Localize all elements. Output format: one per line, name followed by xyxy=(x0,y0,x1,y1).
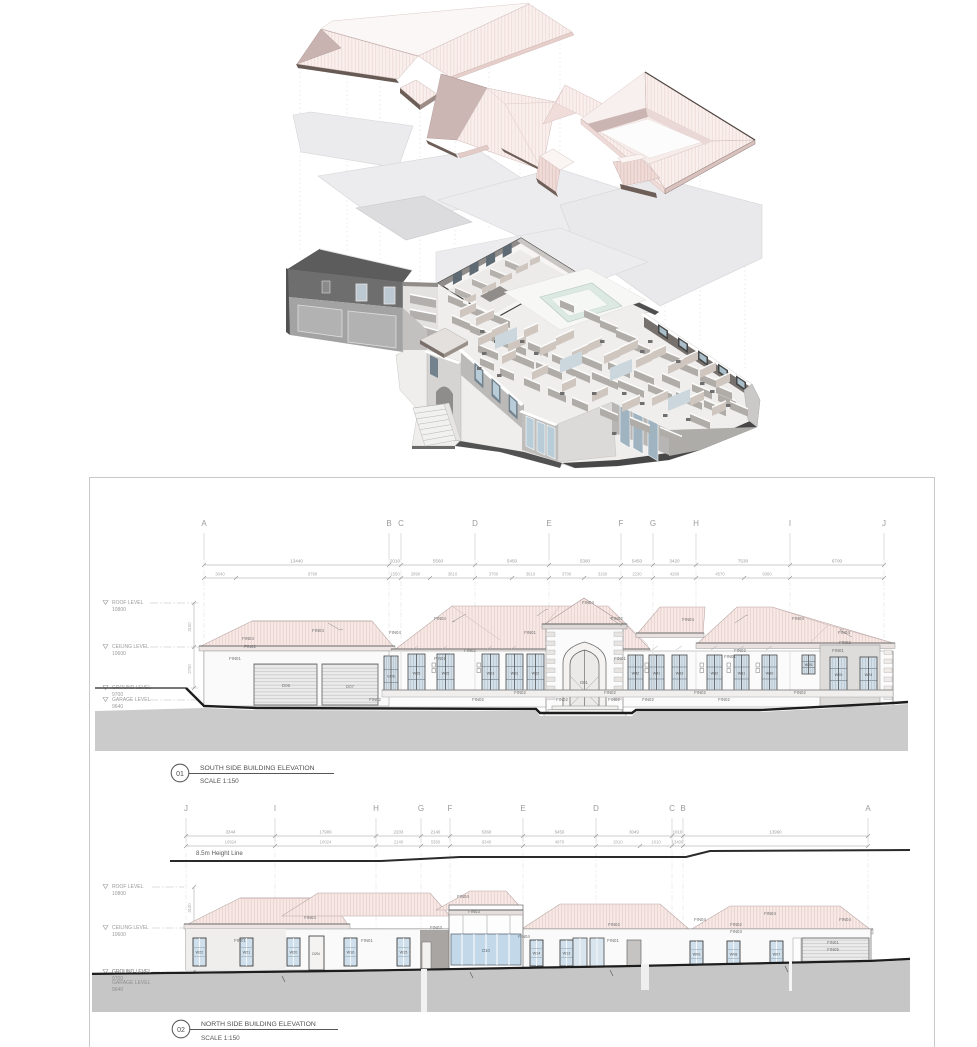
svg-text:5360: 5360 xyxy=(482,830,492,835)
svg-text:W07: W07 xyxy=(773,953,781,957)
svg-text:5450: 5450 xyxy=(632,559,643,564)
svg-text:H: H xyxy=(693,519,699,528)
svg-text:10800: 10800 xyxy=(112,607,126,613)
svg-text:FIN04: FIN04 xyxy=(389,630,401,635)
svg-text:1550: 1550 xyxy=(390,572,400,577)
svg-text:A: A xyxy=(201,519,207,528)
svg-text:I: I xyxy=(789,519,791,528)
svg-text:3049: 3049 xyxy=(629,830,639,835)
svg-text:13440: 13440 xyxy=(290,559,303,564)
svg-text:FIN02: FIN02 xyxy=(244,644,256,649)
svg-text:FIN02: FIN02 xyxy=(472,697,484,702)
svg-text:FIN01: FIN01 xyxy=(827,940,839,945)
svg-text:FIN02: FIN02 xyxy=(464,648,476,653)
svg-text:5560: 5560 xyxy=(433,559,444,564)
svg-text:FIN02: FIN02 xyxy=(694,690,706,695)
svg-text:9640: 9640 xyxy=(112,704,123,710)
svg-text:W05: W05 xyxy=(442,672,450,676)
svg-text:F: F xyxy=(619,519,624,528)
svg-text:W08: W08 xyxy=(730,953,738,957)
svg-text:10024: 10024 xyxy=(320,840,332,845)
svg-text:3344: 3344 xyxy=(226,830,236,835)
svg-text:ROOF LEVEL: ROOF LEVEL xyxy=(112,884,144,890)
svg-text:FIN01: FIN01 xyxy=(724,654,736,659)
svg-text:GARAGE LEVEL: GARAGE LEVEL xyxy=(112,697,151,703)
svg-text:FIN04: FIN04 xyxy=(838,630,850,635)
svg-text:F: F xyxy=(448,804,453,813)
svg-text:2010: 2010 xyxy=(613,840,623,845)
svg-text:FIN04: FIN04 xyxy=(304,915,316,920)
svg-text:FIN04: FIN04 xyxy=(518,934,530,939)
svg-text:NORTH SIDE BUILDING ELEVATION: NORTH SIDE BUILDING ELEVATION xyxy=(201,1021,316,1028)
svg-text:FIN01: FIN01 xyxy=(607,938,619,943)
svg-text:FIN03: FIN03 xyxy=(468,909,480,914)
svg-text:FIN02: FIN02 xyxy=(611,616,623,621)
svg-text:5450: 5450 xyxy=(507,559,518,564)
svg-text:W42: W42 xyxy=(632,672,640,676)
svg-text:FIN02: FIN02 xyxy=(608,922,620,927)
svg-text:FIN04: FIN04 xyxy=(694,917,706,922)
svg-text:B: B xyxy=(680,804,685,813)
svg-text:FIN01: FIN01 xyxy=(234,938,246,943)
svg-text:W05: W05 xyxy=(413,672,421,676)
svg-text:G: G xyxy=(418,804,424,813)
svg-text:FIN03: FIN03 xyxy=(430,925,442,930)
svg-text:9340: 9340 xyxy=(482,840,492,845)
svg-text:FIN02: FIN02 xyxy=(730,922,742,927)
svg-text:CEILING LEVEL: CEILING LEVEL xyxy=(112,925,149,931)
svg-text:B: B xyxy=(386,519,391,528)
svg-text:5380: 5380 xyxy=(580,559,591,564)
svg-text:9790: 9790 xyxy=(308,572,318,577)
svg-text:02: 02 xyxy=(177,1027,185,1034)
svg-text:6700: 6700 xyxy=(832,559,843,564)
svg-text:D: D xyxy=(593,804,599,813)
svg-text:3420: 3420 xyxy=(669,559,680,564)
svg-text:2140: 2140 xyxy=(431,830,441,835)
svg-text:FIN04: FIN04 xyxy=(457,894,469,899)
svg-text:FIN04: FIN04 xyxy=(682,617,694,622)
svg-text:10924: 10924 xyxy=(225,840,237,845)
svg-text:W30: W30 xyxy=(766,672,774,676)
svg-text:FIN04: FIN04 xyxy=(839,917,851,922)
svg-text:FIN02: FIN02 xyxy=(718,697,730,702)
svg-text:W02: W02 xyxy=(532,672,540,676)
svg-text:8.5m Height Line: 8.5m Height Line xyxy=(196,850,243,857)
svg-text:2230: 2230 xyxy=(632,572,642,577)
svg-text:01: 01 xyxy=(176,771,184,778)
svg-text:3100: 3100 xyxy=(187,903,192,913)
svg-text:10600: 10600 xyxy=(112,932,126,938)
svg-text:G: G xyxy=(650,519,656,528)
svg-text:FIN02: FIN02 xyxy=(734,648,746,653)
svg-text:SCALE 1:150: SCALE 1:150 xyxy=(200,778,239,785)
svg-text:J: J xyxy=(882,519,886,528)
svg-text:W26: W26 xyxy=(805,663,813,667)
svg-text:CEILING LEVEL: CEILING LEVEL xyxy=(112,644,149,650)
svg-text:FIN02: FIN02 xyxy=(608,697,620,702)
svg-text:D06: D06 xyxy=(282,683,291,688)
svg-text:FIN03: FIN03 xyxy=(730,929,742,934)
svg-text:2140: 2140 xyxy=(394,840,404,845)
svg-text:3610: 3610 xyxy=(526,572,536,577)
svg-text:ROOF LEVEL: ROOF LEVEL xyxy=(112,600,144,606)
svg-text:W33: W33 xyxy=(676,672,684,676)
svg-text:9360: 9360 xyxy=(762,572,772,577)
svg-text:FIN02: FIN02 xyxy=(369,697,381,702)
svg-text:FIN02: FIN02 xyxy=(514,690,526,695)
svg-text:W03: W03 xyxy=(487,672,495,676)
svg-text:2010: 2010 xyxy=(390,559,401,564)
svg-text:3610: 3610 xyxy=(448,572,458,577)
svg-text:H: H xyxy=(373,804,379,813)
svg-text:SOUTH SIDE BUILDING ELEVATION: SOUTH SIDE BUILDING ELEVATION xyxy=(200,765,315,772)
svg-text:FIN04: FIN04 xyxy=(242,636,254,641)
svg-text:C: C xyxy=(669,804,675,813)
svg-text:FIN02: FIN02 xyxy=(839,640,851,645)
svg-text:13960: 13960 xyxy=(769,830,782,835)
svg-text:FIN01: FIN01 xyxy=(434,656,446,661)
svg-text:I: I xyxy=(274,804,276,813)
svg-text:3100: 3100 xyxy=(187,622,192,632)
svg-text:FIN02: FIN02 xyxy=(642,697,654,702)
svg-text:FIN02: FIN02 xyxy=(556,697,568,702)
svg-text:FIN05: FIN05 xyxy=(827,947,839,952)
svg-text:3040: 3040 xyxy=(215,572,225,577)
svg-text:17909: 17909 xyxy=(319,830,332,835)
svg-text:5360: 5360 xyxy=(431,840,441,845)
svg-text:4570: 4570 xyxy=(715,572,725,577)
svg-text:SCALE 1:150: SCALE 1:150 xyxy=(201,1035,240,1042)
svg-text:4970: 4970 xyxy=(555,840,565,845)
svg-text:D: D xyxy=(472,519,478,528)
svg-text:3160: 3160 xyxy=(598,572,608,577)
svg-text:2890: 2890 xyxy=(411,572,421,577)
svg-text:2203: 2203 xyxy=(394,830,404,835)
svg-text:FIN04: FIN04 xyxy=(582,600,594,605)
svg-text:D10: D10 xyxy=(482,948,490,953)
svg-text:C: C xyxy=(398,519,404,528)
svg-text:FIN01: FIN01 xyxy=(524,630,536,635)
svg-text:FIN01: FIN01 xyxy=(832,648,844,653)
svg-text:W16: W16 xyxy=(347,951,355,955)
svg-text:FIN04: FIN04 xyxy=(764,911,776,916)
svg-text:D2N: D2N xyxy=(312,952,320,956)
svg-text:5450: 5450 xyxy=(555,830,565,835)
svg-text:FIN02: FIN02 xyxy=(794,690,806,695)
svg-text:3700: 3700 xyxy=(489,572,499,577)
svg-text:FIN04: FIN04 xyxy=(312,628,324,633)
svg-text:2750: 2750 xyxy=(187,664,192,674)
svg-text:E: E xyxy=(520,804,525,813)
svg-text:1010: 1010 xyxy=(651,840,661,845)
svg-text:FIN01: FIN01 xyxy=(361,938,373,943)
svg-text:W21: W21 xyxy=(243,951,251,955)
svg-text:FIN01: FIN01 xyxy=(614,656,626,661)
svg-text:W32: W32 xyxy=(711,672,719,676)
svg-text:D07: D07 xyxy=(346,684,355,689)
svg-text:W25: W25 xyxy=(835,673,843,677)
svg-text:GROUND LEVEL: GROUND LEVEL xyxy=(112,969,151,975)
svg-text:10600: 10600 xyxy=(112,651,126,657)
svg-text:10800: 10800 xyxy=(112,891,126,897)
svg-text:D01: D01 xyxy=(580,680,588,685)
svg-text:9640: 9640 xyxy=(112,987,123,993)
svg-text:13400: 13400 xyxy=(672,840,684,845)
svg-text:W09: W09 xyxy=(693,953,701,957)
svg-text:W02: W02 xyxy=(511,672,519,676)
svg-text:FIN01: FIN01 xyxy=(229,656,241,661)
svg-text:FIN02: FIN02 xyxy=(604,690,616,695)
svg-text:W31: W31 xyxy=(738,672,746,676)
svg-text:7530: 7530 xyxy=(738,559,749,564)
svg-text:W41: W41 xyxy=(653,672,661,676)
svg-text:W06: W06 xyxy=(387,675,395,679)
svg-text:FIN04: FIN04 xyxy=(434,616,446,621)
svg-text:W13: W13 xyxy=(563,952,571,956)
svg-text:W22: W22 xyxy=(196,951,204,955)
svg-text:4260: 4260 xyxy=(670,572,680,577)
svg-text:W20: W20 xyxy=(290,951,298,955)
svg-text:J: J xyxy=(184,804,188,813)
svg-text:GARAGE LEVEL: GARAGE LEVEL xyxy=(112,980,151,986)
svg-text:3700: 3700 xyxy=(562,572,572,577)
svg-text:W15: W15 xyxy=(400,951,408,955)
svg-text:E: E xyxy=(546,519,551,528)
svg-text:W24: W24 xyxy=(865,673,873,677)
svg-text:1010: 1010 xyxy=(673,830,683,835)
svg-text:A: A xyxy=(865,804,871,813)
svg-text:W14: W14 xyxy=(533,952,541,956)
svg-text:FIN04: FIN04 xyxy=(792,616,804,621)
